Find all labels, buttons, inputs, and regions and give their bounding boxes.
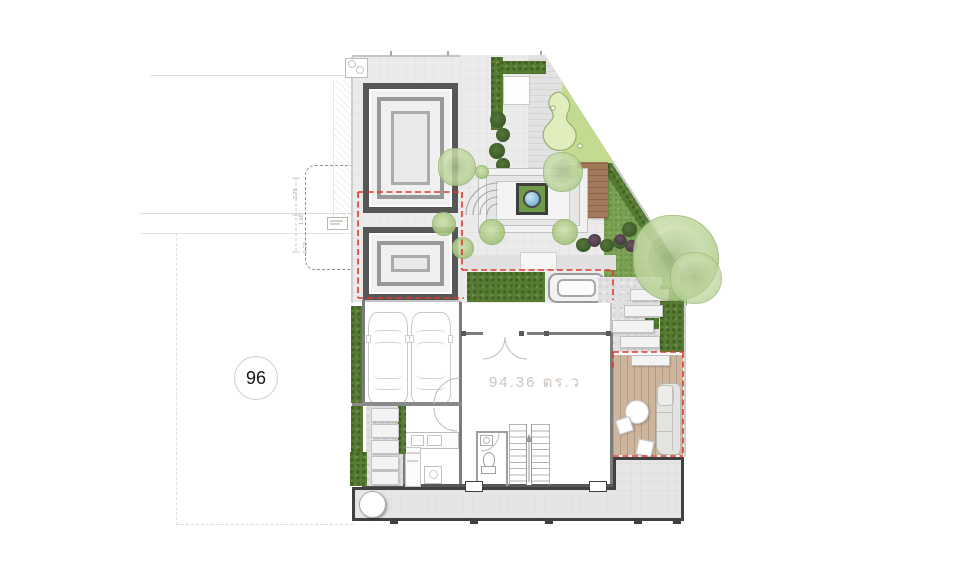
kitchen-hob — [427, 435, 442, 446]
west-hedge-block — [350, 452, 367, 486]
planter-tuft — [452, 237, 474, 259]
planter-tuft — [479, 219, 505, 245]
wall-mid-horizontal — [352, 402, 462, 406]
lot-number-badge: 96 — [234, 356, 278, 400]
tree-canopy — [438, 148, 476, 186]
car-rear-window — [373, 380, 403, 390]
plan-tag — [407, 452, 421, 454]
planter-tuft — [552, 219, 578, 245]
lot-number: 96 — [246, 368, 266, 389]
walkway-notch — [589, 481, 607, 492]
car-mirror — [448, 335, 453, 343]
shrub — [490, 112, 506, 128]
stepping-stone — [371, 440, 399, 454]
planter-tuft — [432, 212, 456, 236]
west-hedge-inner — [351, 406, 363, 452]
car-roof-line — [373, 369, 403, 379]
stepping-stone — [620, 336, 660, 348]
area-label: 94.36 ตร.ว — [455, 370, 615, 394]
column — [606, 331, 611, 336]
curb-tick — [390, 521, 398, 524]
dimension-label: 2.75 — [293, 183, 299, 199]
pouf — [636, 439, 655, 458]
column — [544, 331, 549, 336]
dimension-label: 0.70 — [303, 237, 309, 253]
edge-tick — [447, 51, 449, 56]
tag-line — [330, 220, 343, 222]
stepping-stone — [371, 456, 399, 470]
carport-front-line — [362, 300, 461, 302]
column — [461, 331, 466, 336]
equipment-circle — [348, 60, 356, 68]
kitchen-sink — [411, 435, 424, 446]
tree-canopy — [543, 152, 583, 192]
planter-tuft — [475, 165, 489, 179]
curb-tick — [634, 521, 642, 524]
west-hedge-right — [398, 406, 406, 454]
stepping-stone — [371, 408, 399, 422]
equipment-circle — [356, 66, 364, 74]
front-walkway — [352, 487, 613, 521]
west-hedge-strip — [351, 306, 362, 403]
fountain-water — [523, 190, 541, 208]
car — [368, 312, 408, 404]
stepping-stone — [612, 320, 654, 333]
spa-tub-inner — [557, 279, 596, 297]
site-edge-left — [351, 57, 353, 303]
car-roof-line — [416, 342, 446, 352]
car-windshield — [416, 330, 446, 340]
wall-bath-right — [506, 431, 508, 486]
curb-tick — [545, 521, 553, 524]
kitchen-appliance-dial — [429, 470, 438, 479]
car-rear-window — [416, 380, 446, 390]
stepping-stone — [371, 471, 399, 485]
stepping-stone — [624, 305, 663, 317]
tree-canopy-side — [670, 252, 722, 304]
plan-tag — [407, 460, 418, 462]
site-edge-right — [684, 277, 686, 457]
shrub — [600, 239, 614, 252]
road-edge-line — [150, 75, 352, 76]
hedge-strip-top — [500, 61, 546, 74]
service-pad — [503, 76, 530, 105]
sofa-cushion-line — [657, 431, 673, 432]
curb-tick — [470, 521, 478, 524]
wall-carport-west — [362, 300, 365, 404]
wall-bath-top — [476, 431, 508, 433]
toilet-tank — [481, 466, 496, 474]
paving-panel-small — [363, 227, 458, 300]
curb-tick — [673, 521, 681, 524]
tag-line — [330, 223, 340, 225]
manhole-cover — [359, 491, 386, 518]
patio-left-border — [613, 457, 616, 490]
shrub — [489, 143, 505, 159]
stepping-stone — [631, 355, 670, 366]
wall-bath-left — [476, 431, 478, 486]
hedge-front-porch — [467, 272, 545, 302]
dimension-label: 1.00 — [299, 209, 305, 225]
shrub — [496, 128, 510, 142]
car-mirror — [409, 335, 414, 343]
stair-stringer — [526, 424, 532, 485]
porch-edge — [610, 303, 612, 333]
edge-tick — [390, 51, 392, 56]
car-windshield — [373, 330, 403, 340]
bathroom-sink-bowl — [483, 437, 490, 444]
walkway-notch — [465, 481, 483, 492]
column — [519, 331, 524, 336]
shrub-purple — [615, 234, 626, 245]
car-roof-line — [416, 369, 446, 379]
paving-slab — [520, 252, 557, 270]
sofa-cushion-line — [657, 412, 673, 413]
paving-panel-large — [363, 83, 458, 213]
sofa-back-line — [672, 386, 673, 450]
car — [411, 312, 451, 404]
side-patio — [613, 457, 684, 521]
site-plan: 96 2.75 1.00 0.70 — [0, 0, 960, 578]
car-roof-line — [373, 342, 403, 352]
car-mirror — [366, 335, 371, 343]
wall-north-main — [527, 332, 613, 335]
stepping-stone — [371, 424, 399, 438]
